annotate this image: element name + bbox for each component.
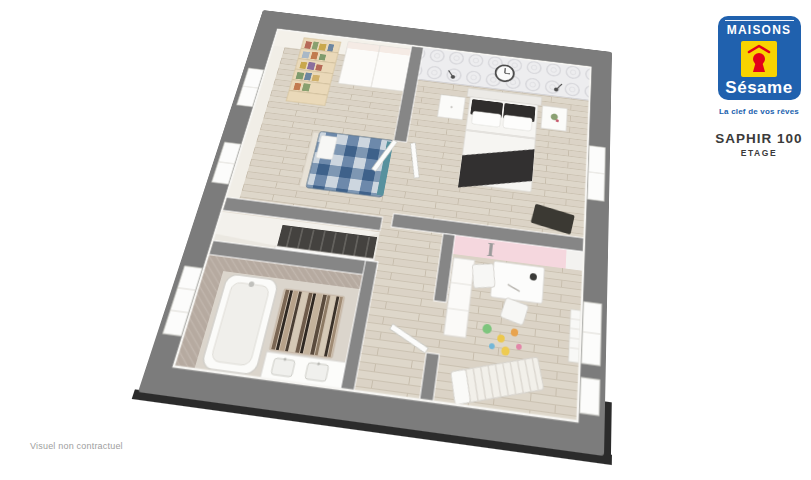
nightstand-right [541, 106, 567, 132]
keyhole-icon [746, 44, 772, 74]
wardrobe [338, 42, 412, 92]
nightstand-left [437, 95, 465, 120]
desk [490, 261, 544, 304]
brand-tagline: La clef de vos rêves [701, 107, 811, 116]
logo-divider [725, 20, 794, 21]
brand-panel: MAISONS Sésame La clef de vos rêves SAPH… [701, 16, 811, 158]
floor-level-label: ETAGE [701, 148, 811, 158]
maisons-sesame-logo: MAISONS Sésame [718, 16, 801, 100]
window-kids-2 [580, 377, 600, 415]
floorplan-render: I [125, 3, 620, 469]
logo-sesame-text: Sésame [718, 79, 801, 97]
desk-chair [472, 264, 495, 288]
floorplan-3d: I [138, 10, 612, 456]
model-name: SAPHIR 100 [701, 131, 811, 146]
logo-yellow-square [741, 41, 777, 77]
logo-maisons-text: MAISONS [718, 24, 801, 37]
disclaimer-text: Visuel non contractuel [30, 441, 123, 451]
